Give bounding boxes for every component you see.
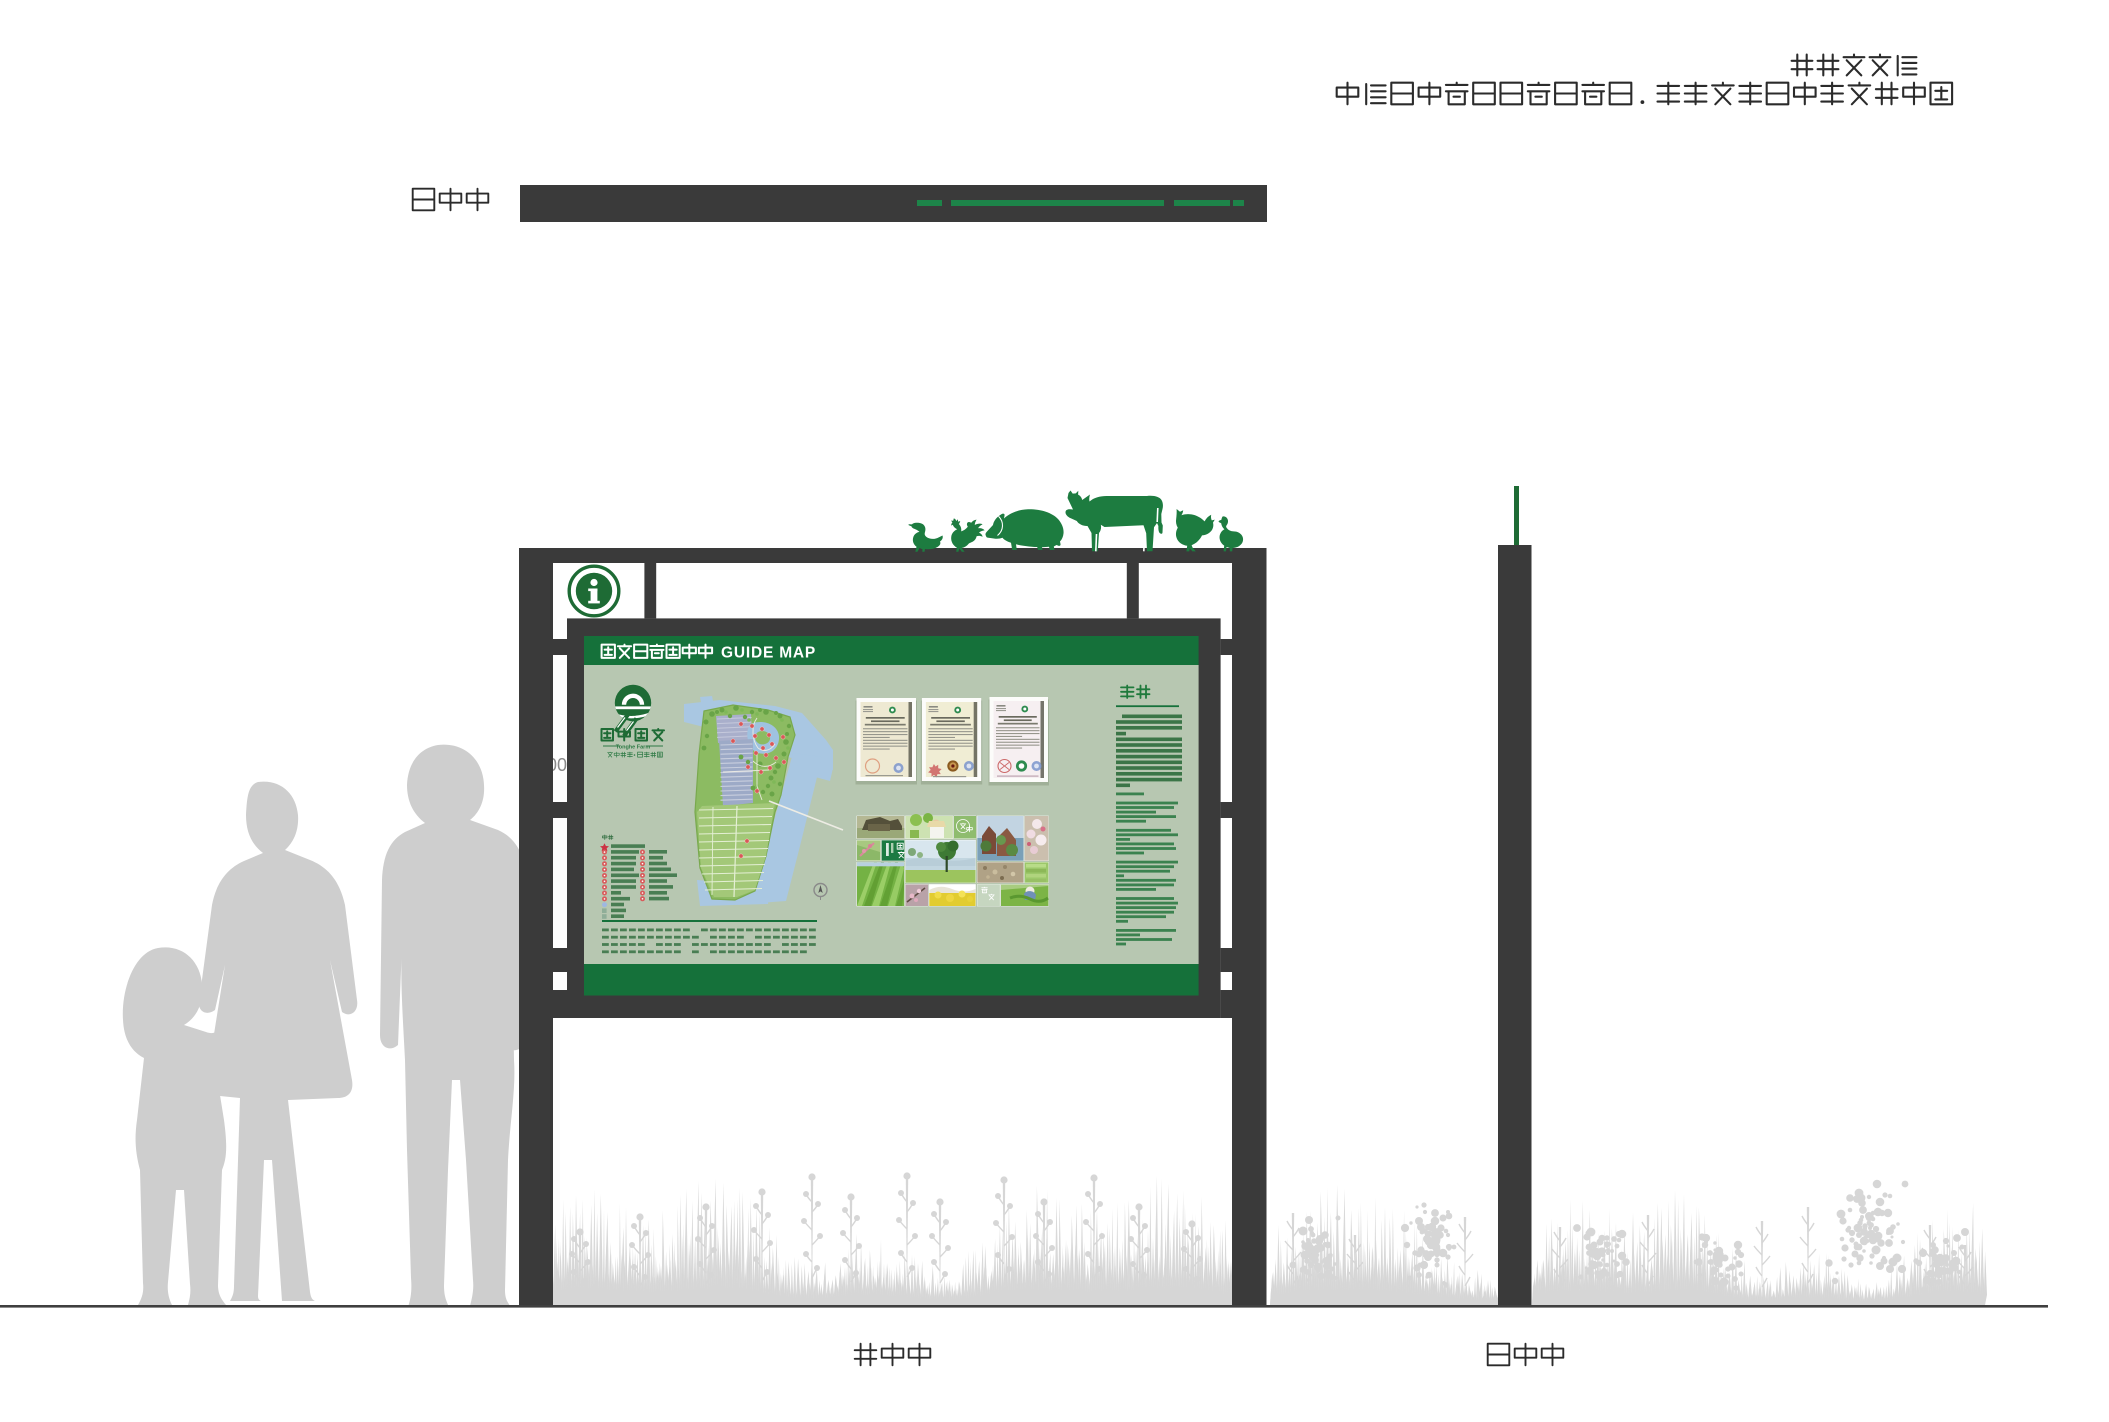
svg-text:GUIDE MAP: GUIDE MAP [721, 645, 816, 662]
svg-text:Tonghe Farm: Tonghe Farm [616, 745, 651, 751]
